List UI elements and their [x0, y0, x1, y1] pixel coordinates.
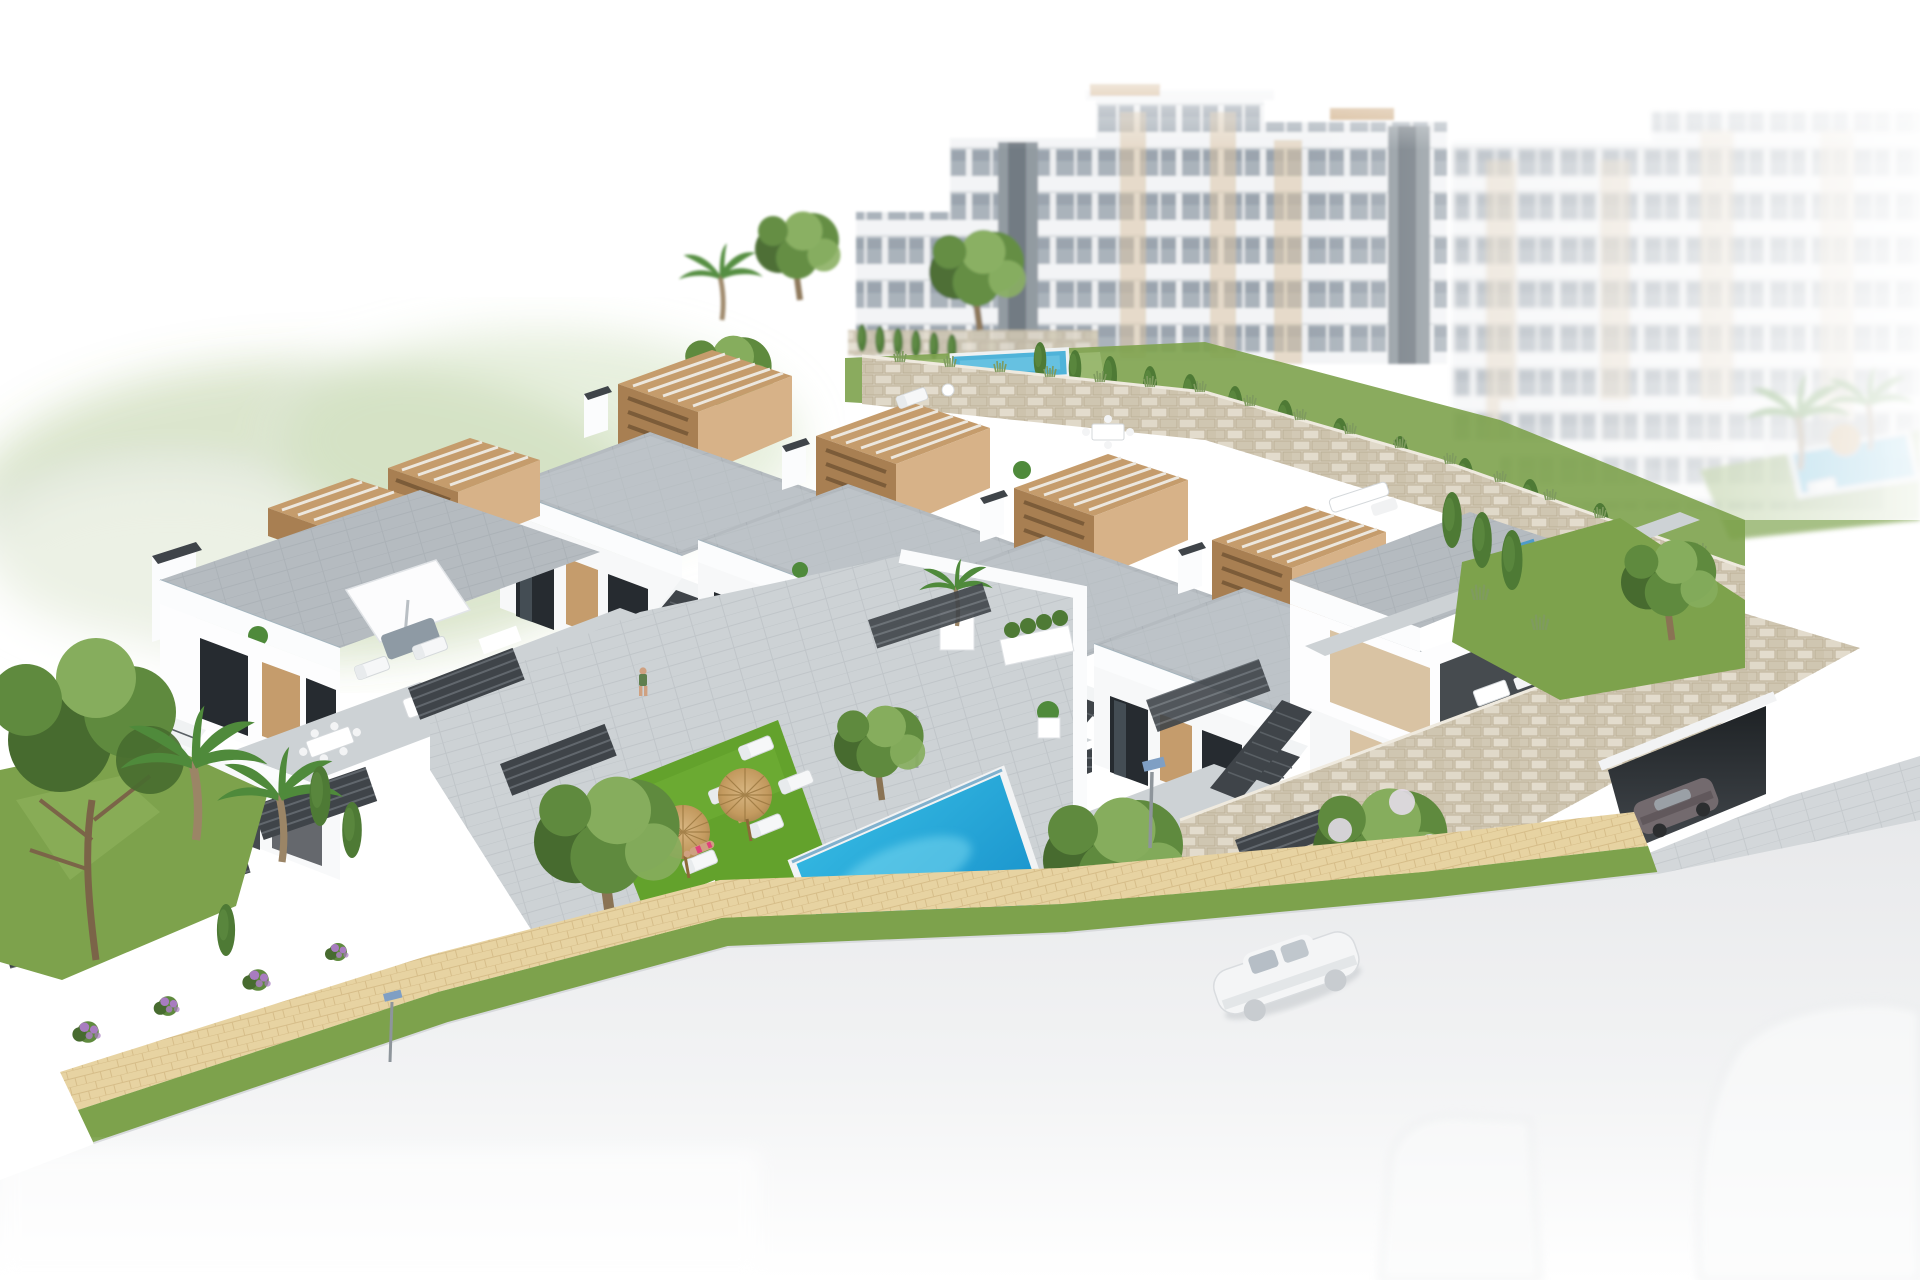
render-canvas: [0, 0, 1920, 1280]
top-haze: [840, 60, 1920, 150]
roof-potted-plant: [1013, 461, 1031, 479]
edge-fade-top: [0, 0, 1920, 70]
architectural-render: [0, 0, 1920, 1280]
faded-car: [1380, 1116, 1540, 1280]
